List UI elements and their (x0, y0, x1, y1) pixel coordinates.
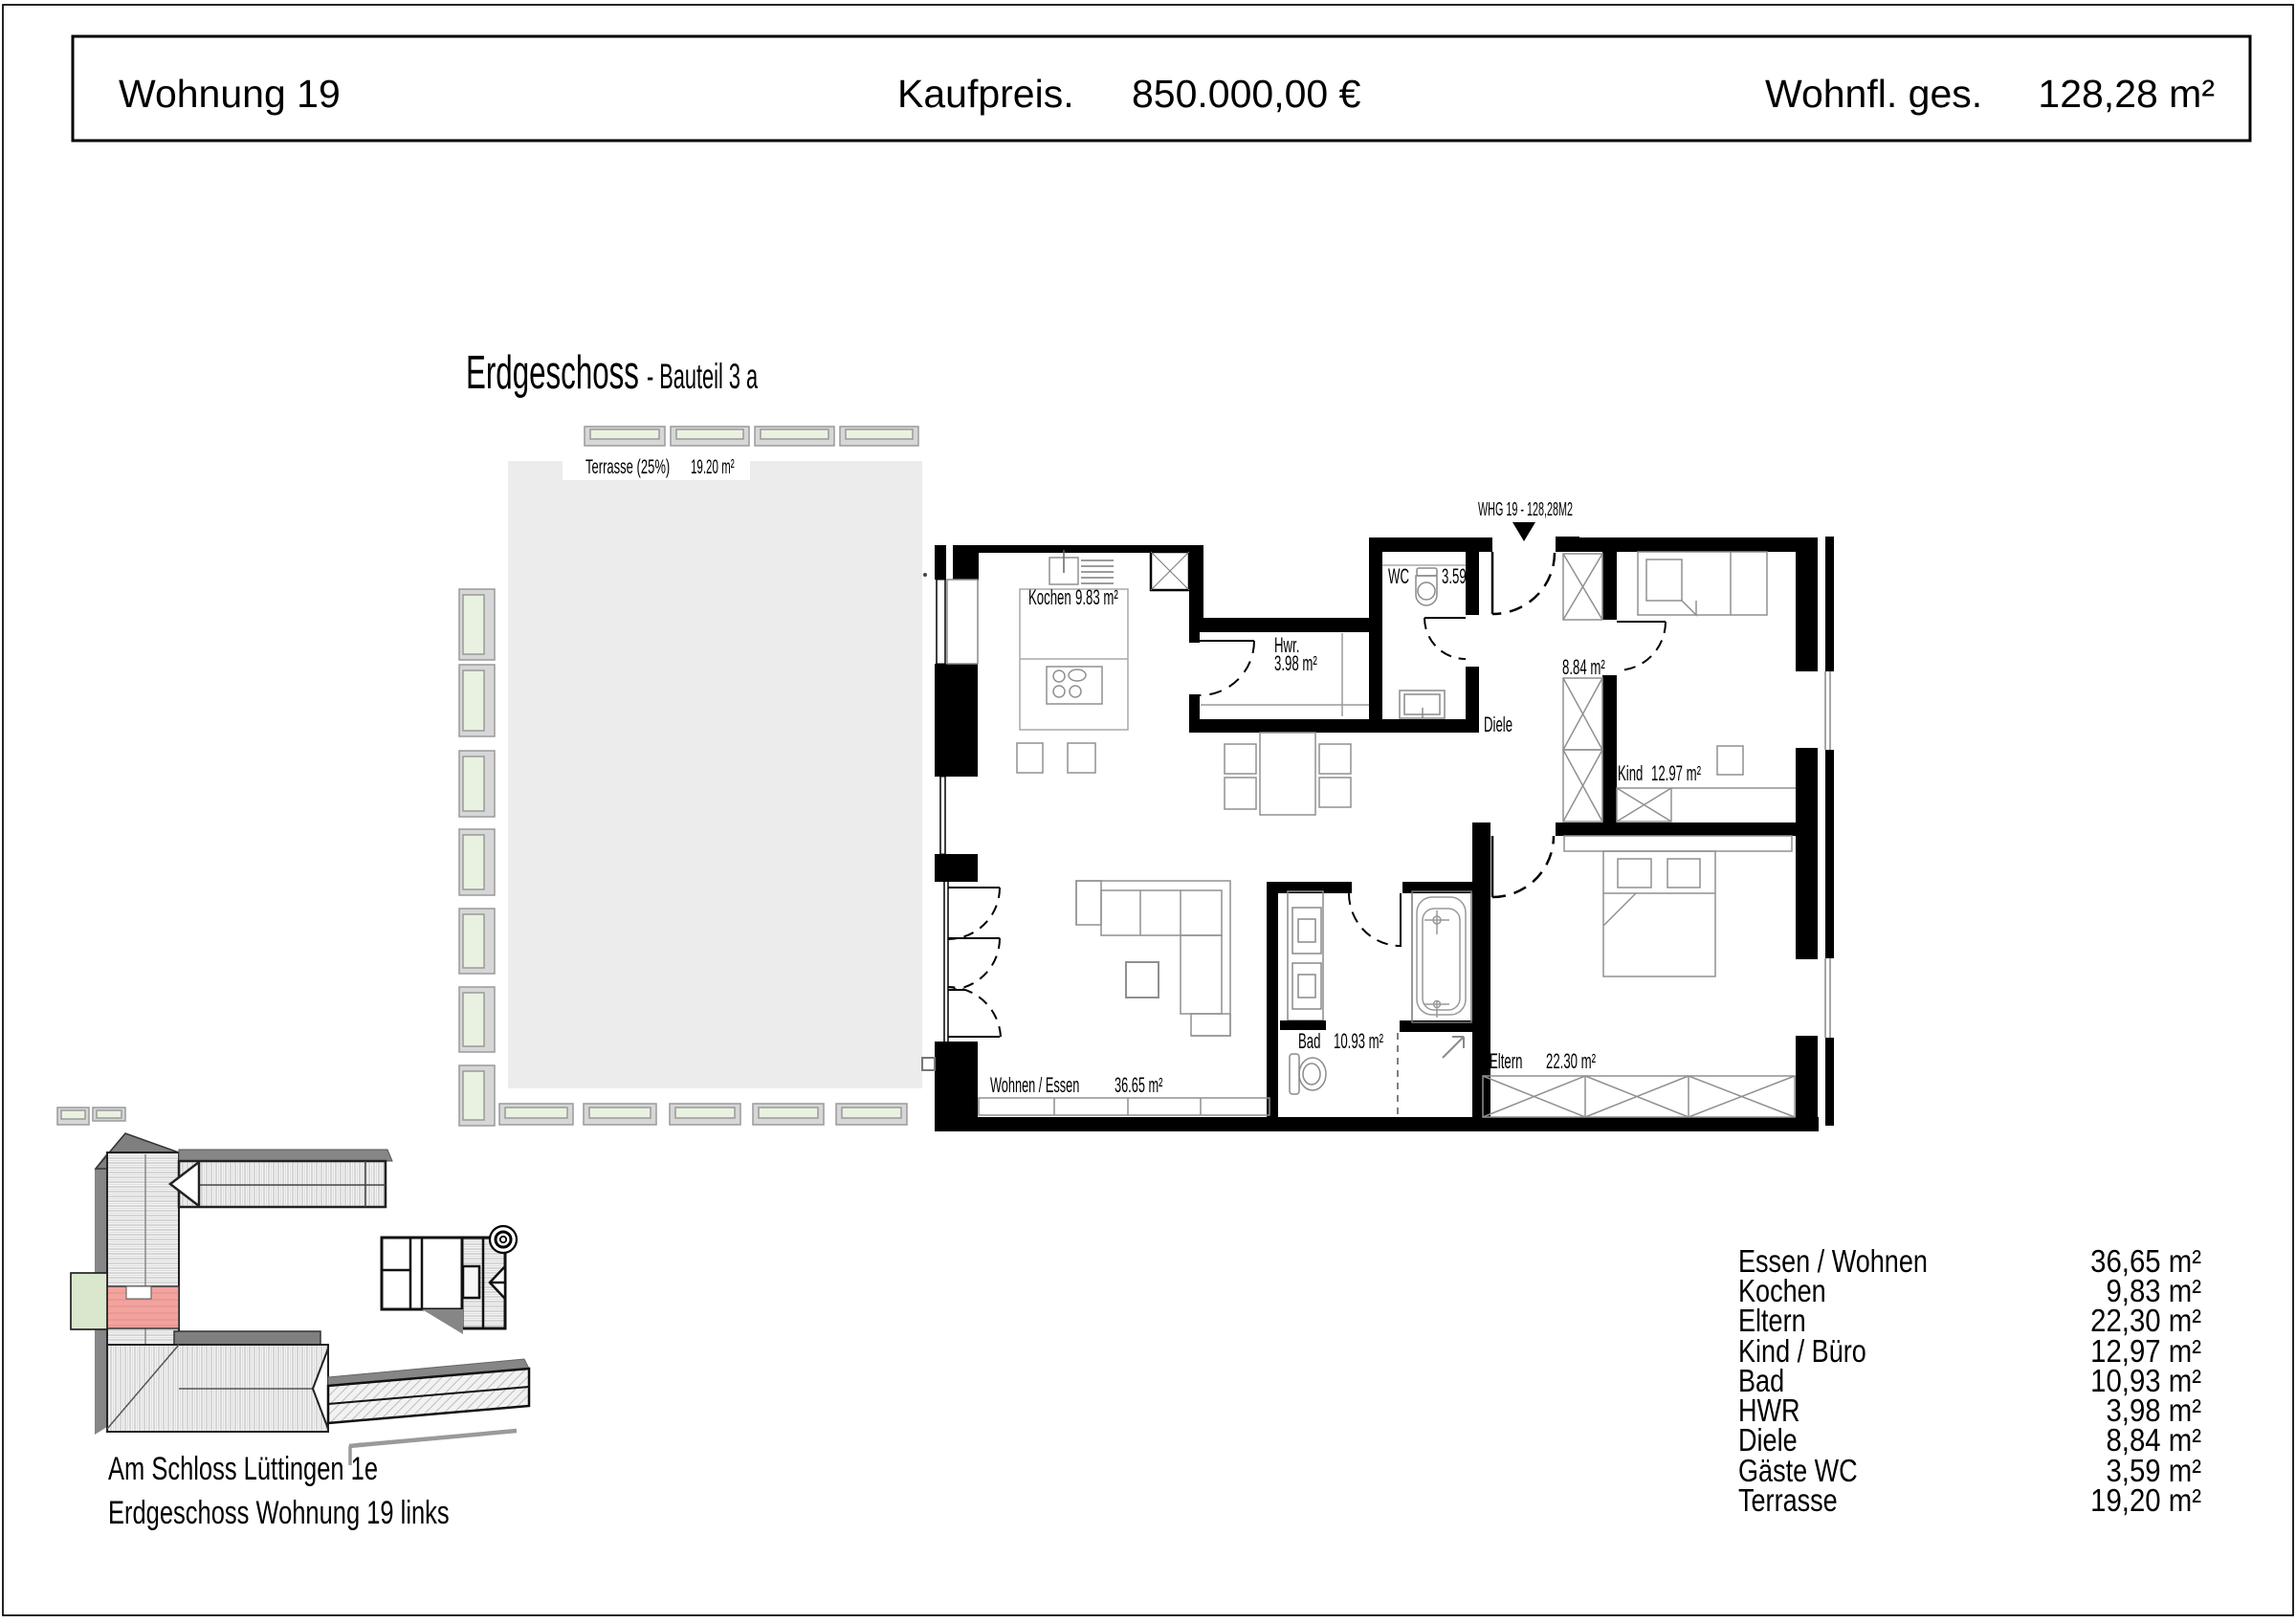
svg-text:Am Schloss Lüttingen 1e: Am Schloss Lüttingen 1e (108, 1452, 378, 1487)
svg-text:3.59: 3.59 (1442, 565, 1467, 588)
svg-text:Kind: Kind (1618, 762, 1643, 785)
svg-text:Erdgeschoss: Erdgeschoss (466, 346, 639, 399)
svg-text:Wohnung 19: Wohnung 19 (119, 72, 341, 116)
svg-text:3.98 m²: 3.98 m² (1274, 652, 1317, 675)
svg-text:19.20 m²: 19.20 m² (691, 455, 735, 478)
svg-text:WHG 19 - 128,28M2: WHG 19 - 128,28M2 (1478, 499, 1573, 520)
svg-text:Bad: Bad (1298, 1030, 1320, 1053)
svg-text:Kochen: Kochen (1028, 586, 1071, 609)
svg-text:128,28 m²: 128,28 m² (2038, 72, 2215, 116)
svg-text:Wohnen / Essen: Wohnen / Essen (990, 1073, 1079, 1096)
svg-text:22.30 m²: 22.30 m² (1546, 1050, 1596, 1073)
svg-text:Wohnfl. ges.: Wohnfl. ges. (1765, 72, 1982, 116)
svg-text:Eltern: Eltern (1738, 1305, 1806, 1339)
svg-text:9.83 m²: 9.83 m² (1075, 586, 1118, 609)
svg-text:Terrasse: Terrasse (1738, 1484, 1838, 1519)
svg-text:Terrasse (25%): Terrasse (25%) (585, 455, 670, 478)
svg-text:850.000,00 €: 850.000,00 € (1132, 72, 1361, 116)
svg-text:10.93 m²: 10.93 m² (1334, 1030, 1383, 1053)
svg-text:Diele: Diele (1484, 713, 1512, 736)
svg-text:Kaufpreis.: Kaufpreis. (897, 72, 1074, 116)
svg-text:36.65 m²: 36.65 m² (1115, 1073, 1162, 1096)
svg-text:Erdgeschoss Wohnung 19 links: Erdgeschoss Wohnung 19 links (108, 1496, 450, 1531)
svg-text:Eltern: Eltern (1490, 1050, 1522, 1073)
svg-text:- Bauteil 3 a: - Bauteil 3 a (647, 358, 758, 396)
svg-text:8.84 m²: 8.84 m² (1562, 656, 1605, 679)
svg-text:12.97 m²: 12.97 m² (1651, 762, 1701, 785)
svg-text:19,20 m²: 19,20 m² (2090, 1482, 2201, 1518)
svg-text:Diele: Diele (1738, 1424, 1798, 1459)
svg-text:WC: WC (1388, 565, 1409, 588)
